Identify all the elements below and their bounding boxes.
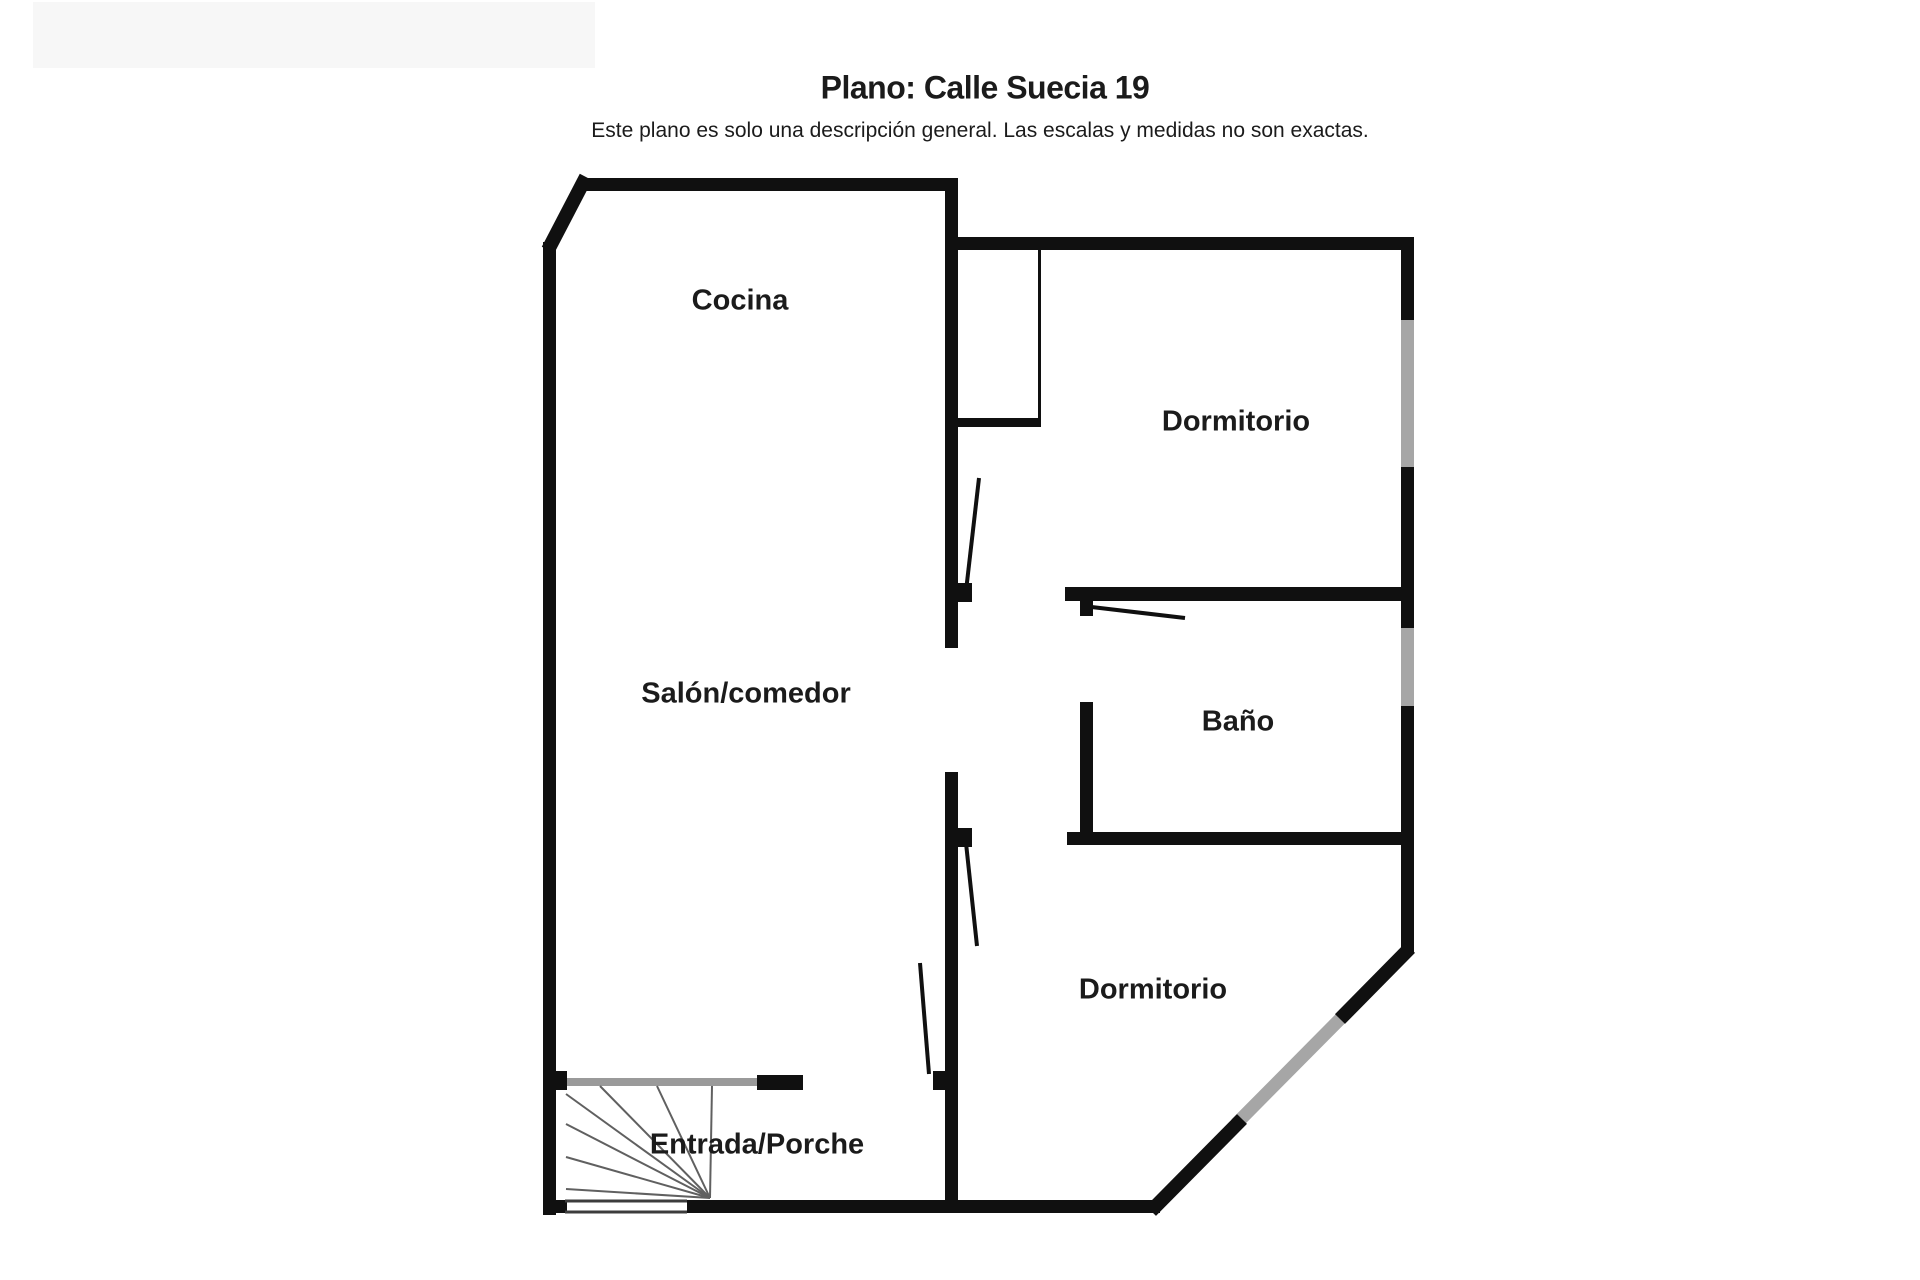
porch-rail-left-post	[552, 1071, 567, 1090]
floorplan-svg	[0, 0, 1920, 1280]
room-label-cocina: Cocina	[692, 285, 789, 318]
bano-left-wall	[1080, 702, 1093, 845]
right-wall-top	[1401, 240, 1414, 320]
plan-title: Plano: Calle Suecia 19	[821, 70, 1150, 107]
central-wall-upper	[945, 178, 958, 648]
top-wall	[580, 178, 958, 191]
bottom-wall	[687, 1200, 1160, 1213]
room-label-dormitorio-2: Dormitorio	[1079, 974, 1227, 1007]
door-leaf-dormitorio2	[966, 843, 977, 946]
room-label-salon-comedor: Salón/comedor	[641, 678, 851, 711]
plan-disclaimer: Este plano es solo una descripción gener…	[591, 119, 1368, 143]
door-leaf-bano	[1083, 606, 1185, 618]
bano-bottom-wall	[1067, 832, 1414, 845]
porch-wall-segment	[757, 1075, 803, 1090]
room-label-dormitorio-1: Dormitorio	[1162, 406, 1310, 439]
door-leaf-dormitorio1	[966, 478, 979, 591]
bottom-wall-left-corner	[543, 1200, 567, 1213]
porch-rail	[563, 1078, 757, 1086]
floorplan-page: Plano: Calle Suecia 19 Este plano es sol…	[0, 0, 1920, 1280]
diagonal-window	[1236, 1013, 1346, 1124]
right-wall-bottom	[1401, 706, 1414, 953]
left-wall	[543, 242, 556, 1215]
chamfer-wall	[548, 177, 586, 250]
room-label-bano: Baño	[1202, 706, 1275, 739]
bano-top-wall	[1065, 587, 1414, 601]
right-wall-mid	[1401, 467, 1414, 628]
right-wall-window-dormitorio1	[1401, 320, 1414, 467]
right-wall-window-bano	[1401, 628, 1414, 706]
central-wall-lower	[945, 772, 958, 1213]
closet-right-wall	[1038, 250, 1041, 420]
stair-tread	[566, 1189, 710, 1198]
header-panel	[33, 2, 595, 68]
diagonal-wall-lower	[1151, 1119, 1242, 1211]
stair-tread	[566, 1157, 710, 1198]
room-label-entrada-porche: Entrada/Porche	[650, 1129, 864, 1162]
dormitorio1-top-wall	[945, 237, 1414, 250]
door-hinge-entrance	[933, 1071, 947, 1090]
door-leaf-entrance	[920, 963, 929, 1074]
diagonal-wall-upper	[1340, 948, 1410, 1019]
closet-bottom-wall	[955, 418, 1041, 427]
